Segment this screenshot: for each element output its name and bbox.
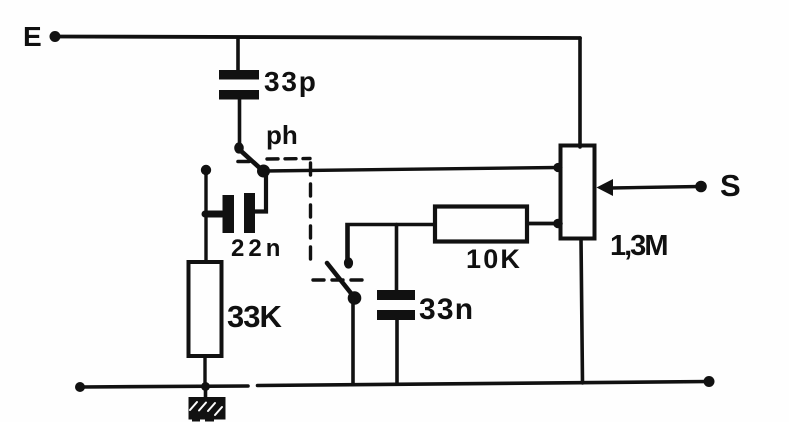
svg-text:33n: 33n [419, 293, 474, 326]
svg-text:33p: 33p [264, 66, 318, 97]
svg-text:10K: 10K [466, 244, 522, 274]
svg-text:ph: ph [266, 120, 298, 150]
svg-text:1,3M: 1,3M [610, 230, 667, 262]
svg-text:33K: 33K [227, 299, 282, 334]
svg-text:22n: 22n [231, 235, 284, 262]
svg-text:E: E [23, 21, 42, 52]
svg-text:S: S [720, 168, 741, 203]
